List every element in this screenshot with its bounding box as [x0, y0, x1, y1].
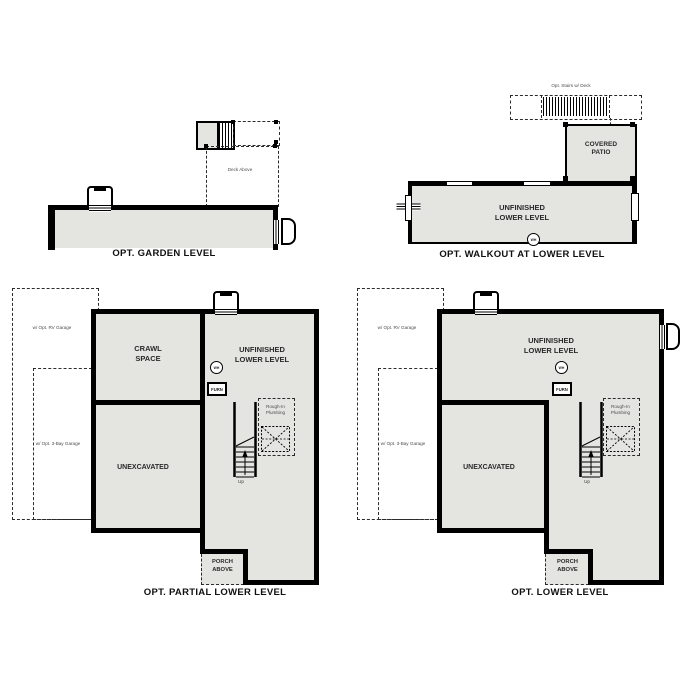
window: [447, 181, 472, 186]
window-glazing: [475, 309, 497, 315]
water-heater-symbol: WH: [210, 361, 223, 374]
wall: [243, 580, 319, 585]
window-well: [281, 218, 296, 245]
rv-garage-label: w/ Opt. RV Garage: [362, 325, 432, 331]
wall: [91, 309, 96, 533]
deck-post-marker: [274, 120, 278, 124]
deck-post-marker: [231, 120, 235, 124]
window-well: [666, 323, 680, 350]
shower-rough-in-symbol: [606, 426, 635, 452]
wall: [243, 549, 248, 585]
stairs: [579, 402, 603, 479]
deck-above-dashed-outline: [206, 146, 279, 207]
stairs-up-label: Up: [234, 479, 248, 485]
window: [631, 193, 639, 221]
water-heater-symbol: WH: [527, 233, 540, 246]
wall: [588, 580, 664, 585]
patio-post: [563, 122, 568, 127]
wall: [48, 205, 55, 250]
deck-above-label: Deck Above: [225, 167, 255, 173]
window-glazing: [273, 220, 280, 244]
unfinished-floor: [593, 549, 659, 580]
patio-post: [563, 176, 568, 181]
wall: [314, 309, 319, 585]
porch-above-label: PORCH ABOVE: [549, 559, 586, 574]
deck-upper-dashed-outline: [233, 121, 280, 146]
unfinished-floor: [442, 314, 659, 400]
opt-stairs-deck-label: Opt. Stairs w/ Deck: [521, 83, 621, 89]
window-glazing: [89, 205, 111, 212]
plan-caption-partial: OPT. PARTIAL LOWER LEVEL: [100, 587, 330, 598]
window-sash: [94, 188, 106, 191]
shower-rough-in-symbol: [261, 426, 290, 452]
opt-stairs-hatch: [543, 97, 607, 116]
plan-caption-garden: OPT. GARDEN LEVEL: [64, 248, 264, 259]
floor-plan-sheet: Deck Above OPT. GARDEN LEVEL Opt. Stairs…: [0, 0, 687, 687]
patio-post: [630, 122, 635, 127]
wall: [91, 309, 319, 314]
window: [405, 195, 412, 221]
patio-post: [630, 176, 635, 181]
plan-caption-walkout: OPT. WALKOUT AT LOWER LEVEL: [407, 249, 637, 260]
water-heater-symbol: WH: [555, 361, 568, 374]
wall: [437, 309, 664, 314]
unfinished-lower-level-label: UNFINISHED LOWER LEVEL: [487, 203, 557, 223]
stairs-up-label: Up: [580, 479, 594, 485]
window: [524, 181, 550, 186]
wall: [544, 549, 593, 554]
window-well: [213, 291, 239, 311]
deck-post-marker: [273, 144, 277, 148]
crawl-space-label: CRAWL SPACE: [123, 344, 173, 364]
garden-level-floor: [55, 210, 273, 248]
window-glazing: [215, 309, 237, 315]
porch-above-label: PORCH ABOVE: [204, 559, 241, 574]
three-bay-garage-label: w/ Opt. 3-Bay Garage: [28, 441, 88, 447]
opt-stairs-divider: [609, 95, 610, 118]
window-glazing: [659, 325, 665, 349]
three-bay-garage-label: w/ Opt. 3-Bay Garage: [373, 441, 433, 447]
window-well: [473, 291, 499, 311]
unexcavated-label: UNEXCAVATED: [93, 463, 193, 472]
walkout-edge-line: [410, 242, 637, 244]
wall: [437, 528, 549, 533]
wall: [200, 309, 205, 554]
furnace-symbol: FURN: [207, 382, 227, 396]
wall: [437, 400, 549, 405]
unfinished-floor: [248, 549, 314, 580]
wall: [91, 528, 205, 533]
rv-garage-label: w/ Opt. RV Garage: [17, 325, 87, 331]
wall: [659, 309, 664, 585]
furnace-symbol: FURN: [552, 382, 572, 396]
covered-patio-label: COVERED PATIO: [576, 141, 626, 158]
wall: [437, 309, 442, 533]
wall: [91, 400, 205, 405]
opt-stairs-divider: [541, 95, 542, 118]
wall: [588, 549, 593, 585]
stairs: [233, 402, 257, 479]
deck-post-marker: [204, 144, 208, 148]
unfinished-lower-level-label: UNFINISHED LOWER LEVEL: [516, 336, 586, 356]
rough-in-plumbing-label: Rough-In Plumbing: [605, 404, 636, 416]
window-sash: [480, 293, 492, 296]
wall: [200, 549, 248, 554]
rough-in-plumbing-label: Rough-In Plumbing: [260, 404, 291, 416]
window-sash: [220, 293, 232, 296]
plan-caption-lower: OPT. LOWER LEVEL: [445, 587, 675, 598]
window-well: [87, 186, 113, 207]
unexcavated-label: UNEXCAVATED: [439, 463, 539, 472]
unfinished-lower-level-label: UNFINISHED LOWER LEVEL: [227, 345, 297, 365]
